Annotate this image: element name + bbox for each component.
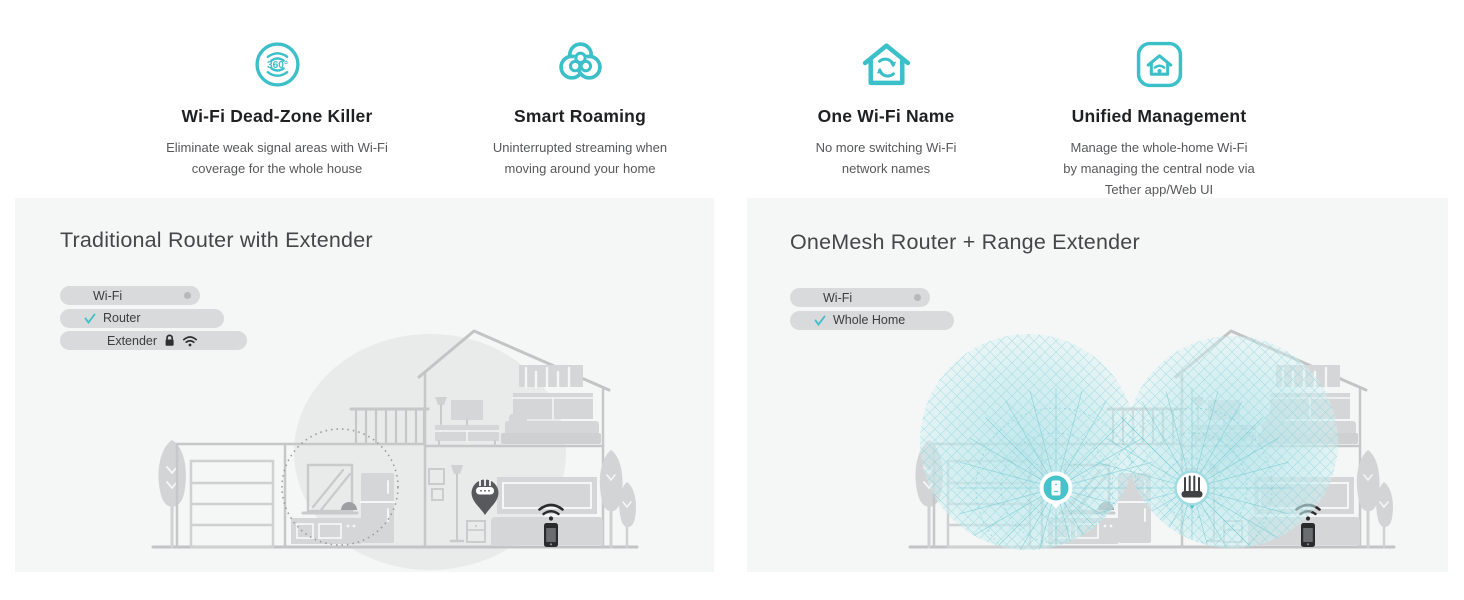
one-wifi-name-icon [859, 40, 914, 90]
check-icon [814, 315, 826, 326]
panel-traditional-router: Traditional Router with Extender Wi-Fi R… [15, 198, 714, 572]
lock-icon [164, 334, 175, 347]
feature-description: Manage the whole-home Wi-Fi by managing … [1063, 137, 1255, 200]
status-dot [184, 292, 191, 299]
feature-title: Smart Roaming [514, 106, 646, 127]
wifi-360-icon: 360° [253, 40, 302, 90]
legend-item-extender: Extender [60, 331, 247, 350]
feature-smart-roaming: Smart Roaming Uninterrupted streaming wh… [455, 40, 705, 179]
feature-description: Eliminate weak signal areas with Wi-Fi c… [151, 137, 403, 179]
feature-dead-zone-killer: 360° Wi-Fi Dead-Zone Killer Eliminate we… [117, 40, 437, 179]
page: 360° Wi-Fi Dead-Zone Killer Eliminate we… [0, 0, 1464, 600]
panel-title: Traditional Router with Extender [60, 228, 373, 253]
legend-item-router: Router [60, 309, 224, 328]
panel-onemesh: OneMesh Router + Range Extender Wi-Fi Wh… [747, 198, 1448, 572]
legend-item-wifi: Wi-Fi [790, 288, 930, 307]
feature-title: Unified Management [1072, 106, 1247, 127]
feature-unified-management: Unified Management Manage the whole-home… [1034, 40, 1284, 200]
feature-description: Uninterrupted streaming when moving arou… [483, 137, 678, 179]
wifi-icon [182, 335, 198, 347]
feature-title: Wi-Fi Dead-Zone Killer [182, 106, 373, 127]
legend-label: Whole Home [833, 313, 905, 327]
status-dot [914, 294, 921, 301]
legend-label: Extender [107, 334, 157, 348]
unified-management-icon [1135, 40, 1184, 90]
panel-title: OneMesh Router + Range Extender [790, 230, 1140, 255]
legend-onemesh: Wi-Fi Whole Home [790, 288, 954, 333]
legend-item-whole-home: Whole Home [790, 311, 954, 330]
feature-title: One Wi-Fi Name [818, 106, 955, 127]
legend-label: Router [103, 311, 141, 325]
legend-traditional: Wi-Fi Router Extender [60, 286, 247, 354]
feature-one-wifi-name: One Wi-Fi Name No more switching Wi-Fi n… [776, 40, 996, 179]
legend-label: Wi-Fi [93, 289, 122, 303]
legend-label: Wi-Fi [823, 291, 852, 305]
house-illustration-traditional [15, 198, 714, 572]
check-icon [84, 313, 96, 324]
smart-roaming-icon [557, 40, 604, 90]
legend-item-wifi: Wi-Fi [60, 286, 200, 305]
feature-description: No more switching Wi-Fi network names [807, 137, 965, 179]
